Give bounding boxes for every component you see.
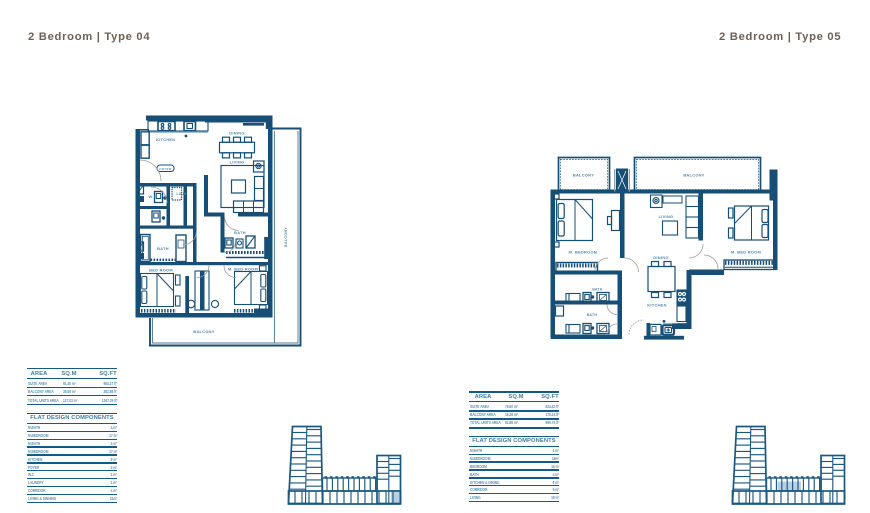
svg-text:BALCONY: BALCONY [284,227,288,247]
svg-text:BATH: BATH [157,246,169,251]
svg-text:KITCHEN: KITCHEN [647,303,666,308]
svg-text:M. BED ROOM: M. BED ROOM [228,267,258,272]
svg-text:BATH: BATH [592,288,603,292]
svg-text:BALCONY: BALCONY [573,173,594,178]
svg-text:BATH: BATH [587,313,598,317]
svg-text:BATH: BATH [234,230,246,235]
svg-text:M. BEDROOM: M. BEDROOM [569,250,598,255]
svg-text:LIVING: LIVING [230,160,245,165]
svg-text:BED ROOM: BED ROOM [149,268,173,273]
svg-text:BALCONY: BALCONY [193,329,214,334]
svg-text:W.C: W.C [149,194,157,199]
svg-text:DINING: DINING [653,255,668,260]
svg-text:LIVING: LIVING [659,214,674,219]
svg-text:DINING: DINING [229,131,244,136]
svg-text:M. BED ROOM: M. BED ROOM [731,250,761,255]
svg-text:LAUN: LAUN [177,192,187,196]
svg-text:FOYER: FOYER [159,167,172,171]
svg-text:KITCHEN: KITCHEN [156,137,175,142]
svg-text:BALCONY: BALCONY [683,173,704,178]
